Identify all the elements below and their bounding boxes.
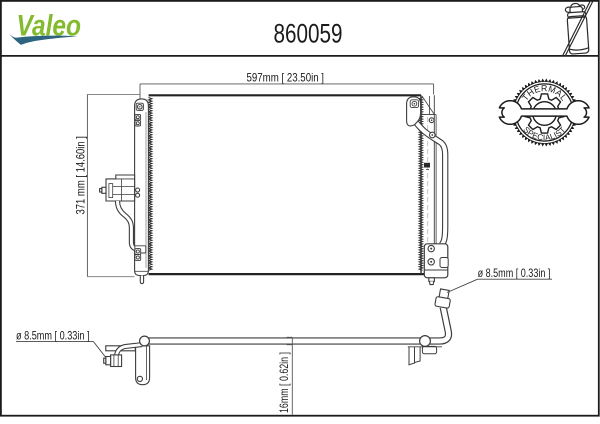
svg-text:ø 8.5mm [ 0.33in ]: ø 8.5mm [ 0.33in ] [478, 266, 551, 280]
svg-text:16mm [ 0.62in ]: 16mm [ 0.62in ] [277, 352, 291, 413]
svg-text:597mm [ 23.50in ]: 597mm [ 23.50in ] [247, 71, 325, 85]
svg-text:860059: 860059 [274, 18, 343, 48]
svg-text:371 mm [ 14.60in ]: 371 mm [ 14.60in ] [74, 136, 88, 214]
svg-text:ø 8.5mm [ 0.33in ]: ø 8.5mm [ 0.33in ] [16, 328, 90, 342]
